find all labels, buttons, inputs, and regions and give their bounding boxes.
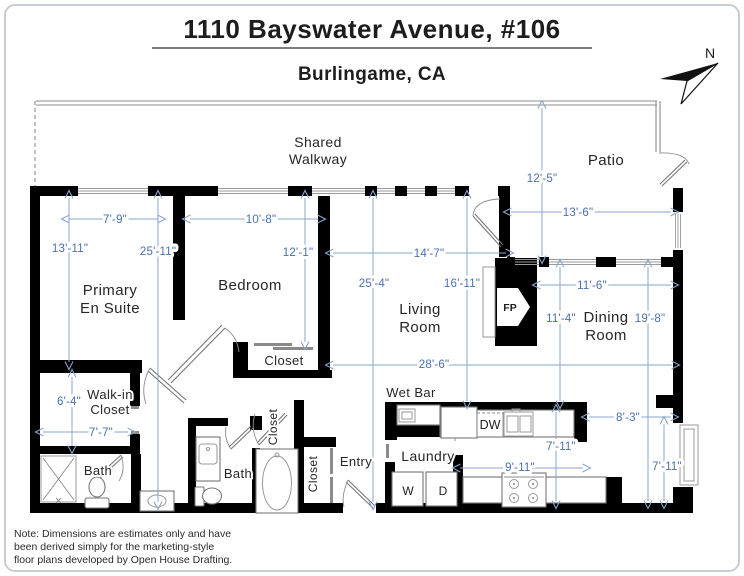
room-label-laundry: Laundry [401,448,454,464]
window-living-3 [407,189,425,194]
room-label-entry-closet: Closet [306,456,320,493]
room-label-bedroom-closet: Closet [264,353,303,368]
window-bedroom [218,189,288,194]
room-label-entry: Entry [340,454,372,469]
window-bay [680,425,698,485]
dimension-label-2: 25'-11" [140,246,176,258]
dimension-label-18: 7'-11" [652,461,682,473]
window-dining-3 [616,260,661,265]
window-patio-side [676,214,681,248]
patio-door [473,199,503,247]
window-dining-2 [549,260,596,265]
room-label-shared-walkway: SharedWalkway [289,134,347,167]
dimension-label-3: 10'-8" [246,214,277,226]
room-label-bedroom: Bedroom [218,277,282,294]
floor-plan-page: 1110 Bayswater Avenue, #106 Burlingame, … [0,0,744,576]
closet-slider-1 [254,343,292,346]
entry-closet-bifold-1 [330,448,333,474]
walkin-jamb-2 [131,431,139,434]
stove [502,473,546,507]
entry-closet-bifold-2 [330,477,333,503]
walkin-jamb-1 [131,406,139,409]
closet-slider-2 [273,347,313,350]
dimension-label-10: 11'-6" [577,280,607,292]
window-living-4 [437,189,455,194]
dimension-label-1: 13'-11" [52,243,88,255]
north-label: N [705,45,715,61]
bathtub [256,449,298,513]
dimension-label-11: 11'-4" [546,313,576,325]
patio-gate [659,153,689,186]
room-label-bath-hall: Bath [224,466,252,481]
toilet-primary [85,477,109,508]
page-subtitle: Burlingame, CA [298,64,446,85]
dimension-label-9: 16'-11" [444,278,480,290]
dimension-label-19: 9'-11" [505,462,535,474]
dimension-label-16: 8'-3" [616,412,640,424]
dimension-label-17: 7'-11" [546,441,576,453]
room-label-living-room: LivingRoom [399,301,441,336]
refrigerator [441,407,477,441]
dimension-label-0: 7'-9" [103,214,127,226]
north-arrow-icon: N [660,45,718,104]
walkway-fence [35,101,660,186]
fixture-label-dryer: D [439,484,448,498]
dimension-label-4: 12'-1" [283,247,314,259]
dimension-label-15: 7'-7" [89,427,113,439]
dimension-label-13: 28'-6" [419,359,450,371]
room-label-primary-en-suite: PrimaryEn Suite [80,282,140,317]
toilet-hall-bath [195,487,222,506]
room-label-patio: Patio [588,152,624,169]
room-label-linen-closet: Closet [266,409,280,446]
window-primary [78,189,148,194]
wet-bar-counter [397,405,440,425]
fixture-label-washer: W [402,484,414,498]
dimension-label-8: 25'-4" [359,278,390,290]
window-living-1 [312,189,365,194]
laundry-door-jamb [386,444,389,458]
dimension-label-12: 19'-8" [635,313,666,325]
shower [41,456,76,503]
room-label-walk-in-closet: Walk-inCloset [87,387,133,417]
note-line-1: Note: Dimensions are estimates only and … [14,528,231,540]
bedroom-door [168,325,239,383]
floor-plan-drawing: 1110 Bayswater Avenue, #106 Burlingame, … [0,0,744,576]
dimension-label-7: 14'-7" [414,248,445,260]
window-living-2 [377,189,395,194]
dimension-label-14: 6'-4" [57,396,81,408]
room-label-wet-bar: Wet Bar [386,385,436,400]
dimension-label-5: 12'-5" [527,173,558,185]
entry-door [343,480,375,508]
hall-bath-door [226,426,253,449]
window-bay-inner [684,429,694,481]
note-line-2: been derived simply for the marketing-st… [14,541,214,553]
room-label-bath-primary: Bath [84,463,112,478]
note-line-3: floor plans developed by Open House Draf… [14,554,232,566]
dimension-label-6: 13'-6" [563,207,594,219]
page-title: 1110 Bayswater Avenue, #106 [183,14,560,44]
room-label-dining-room: DiningRoom [584,309,629,344]
vanity-primary [140,491,174,511]
fixture-label-fireplace: FP [503,302,516,314]
fixture-label-dishwasher: DW [480,418,501,432]
disclaimer-note: Note: Dimensions are estimates only and … [14,528,232,566]
vanity-hall-bath [196,437,220,481]
